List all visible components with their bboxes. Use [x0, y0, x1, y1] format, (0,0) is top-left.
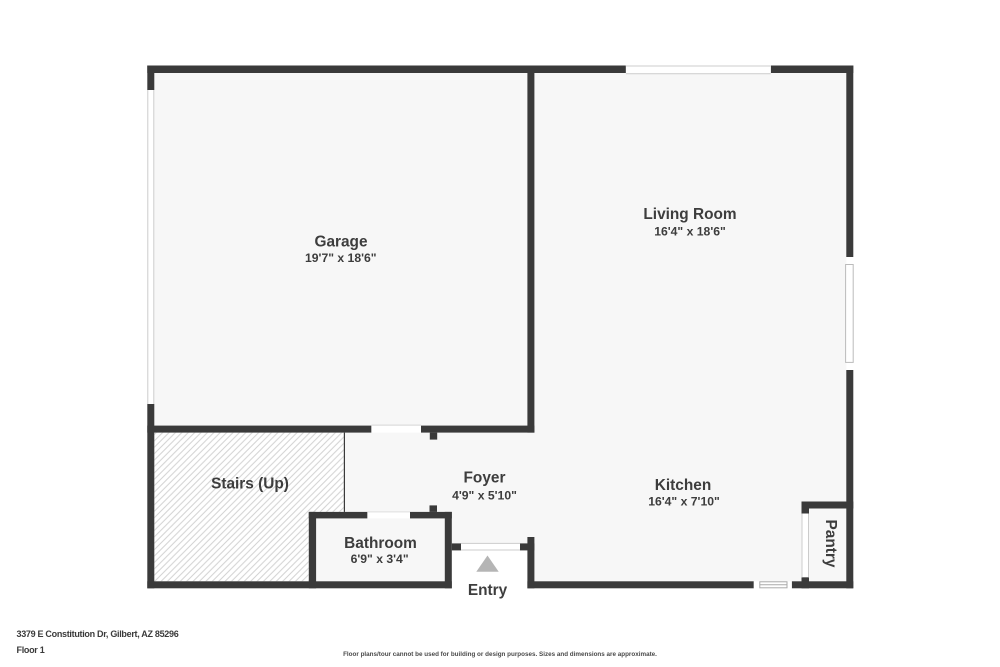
svg-text:Stairs (Up): Stairs (Up): [211, 476, 289, 493]
svg-text:16'4" x 7'10": 16'4" x 7'10": [648, 495, 720, 509]
svg-text:3379 E Constitution Dr, Gilber: 3379 E Constitution Dr, Gilbert, AZ 8529…: [17, 629, 179, 639]
svg-text:Garage: Garage: [314, 234, 367, 251]
svg-text:Foyer: Foyer: [464, 470, 506, 487]
svg-text:Living Room: Living Room: [643, 206, 736, 223]
svg-text:19'7" x 18'6": 19'7" x 18'6": [305, 251, 377, 265]
svg-text:6'9" x 3'4": 6'9" x 3'4": [351, 552, 409, 566]
svg-text:16'4" x 18'6": 16'4" x 18'6": [654, 225, 726, 239]
svg-text:Pantry: Pantry: [822, 520, 839, 568]
svg-text:Entry: Entry: [468, 582, 508, 599]
svg-text:Floor plans/tour cannot be use: Floor plans/tour cannot be used for buil…: [343, 651, 657, 658]
svg-text:4'9" x 5'10": 4'9" x 5'10": [452, 489, 517, 503]
svg-text:Kitchen: Kitchen: [655, 477, 711, 494]
svg-text:Bathroom: Bathroom: [344, 535, 417, 552]
svg-text:Floor 1: Floor 1: [17, 645, 45, 655]
